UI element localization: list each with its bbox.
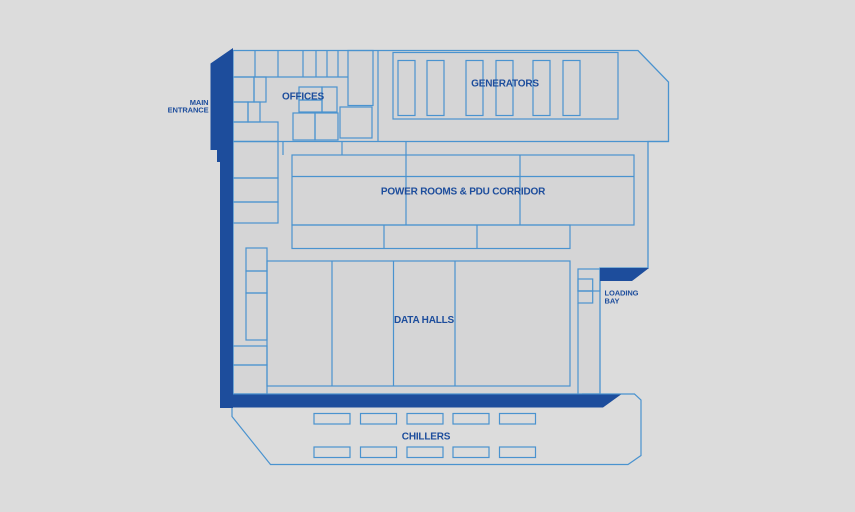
chiller-unit <box>407 414 443 425</box>
loading-bay-label-line2: BAY <box>605 297 620 306</box>
south-wall-bar <box>220 395 621 408</box>
chiller-unit <box>361 447 397 458</box>
chiller-unit <box>407 447 443 458</box>
chiller-unit <box>314 447 350 458</box>
chillers-label: CHILLERS <box>402 432 451 443</box>
data-halls-label: DATA HALLS <box>394 315 455 326</box>
power-rooms-label: POWER ROOMS & PDU CORRIDOR <box>381 187 546 198</box>
chiller-unit <box>453 414 489 425</box>
chiller-unit <box>453 447 489 458</box>
offices-label: OFFICES <box>282 92 324 103</box>
data-center-floor-plan: MAIN ENTRANCE OFFICES GENERATORS POWER R… <box>0 0 855 512</box>
main-entrance-bar <box>211 48 234 408</box>
main-entrance-label-line2: ENTRANCE <box>168 106 209 115</box>
loading-bay-wedge <box>600 268 649 281</box>
generators-label: GENERATORS <box>471 79 539 90</box>
chiller-unit <box>500 447 536 458</box>
floor-plan-canvas: MAIN ENTRANCE OFFICES GENERATORS POWER R… <box>0 0 855 512</box>
chiller-unit <box>361 414 397 425</box>
chiller-unit <box>500 414 536 425</box>
chiller-unit <box>314 414 350 425</box>
